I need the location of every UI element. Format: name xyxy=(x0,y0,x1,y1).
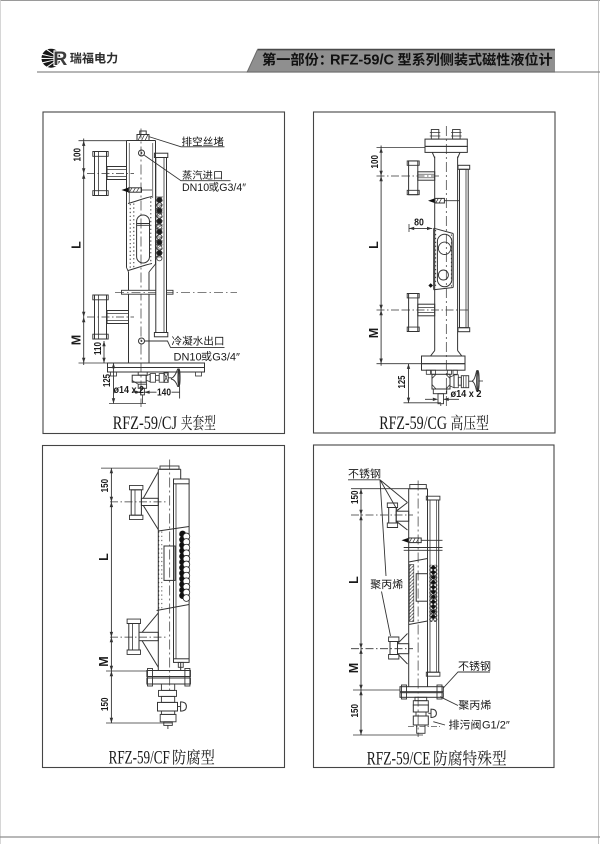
svg-text:100: 100 xyxy=(73,148,84,162)
svg-text:L: L xyxy=(347,576,361,584)
svg-text:G3/4″: G3/4″ xyxy=(212,351,240,363)
svg-text:R: R xyxy=(53,48,67,70)
svg-text:RFZ-59/CJ: RFZ-59/CJ xyxy=(113,413,177,434)
svg-text:140: 140 xyxy=(157,388,171,399)
svg-text:L: L xyxy=(70,241,84,249)
svg-text:100: 100 xyxy=(370,155,381,169)
svg-text:M: M xyxy=(347,663,361,673)
svg-text:RFZ-59/CG: RFZ-59/CG xyxy=(379,413,447,434)
svg-text:150: 150 xyxy=(350,704,361,718)
svg-text:125: 125 xyxy=(397,375,408,388)
svg-text:DN10: DN10 xyxy=(182,182,209,194)
svg-text:G3/4″: G3/4″ xyxy=(219,182,246,194)
svg-text:L: L xyxy=(97,553,111,561)
svg-text:110: 110 xyxy=(93,342,104,355)
svg-text:RFZ-59/CF: RFZ-59/CF xyxy=(109,747,170,768)
svg-text:80: 80 xyxy=(414,216,424,228)
svg-text:ø14 x 2: ø14 x 2 xyxy=(114,385,145,396)
svg-text:DN10: DN10 xyxy=(174,351,202,363)
svg-text:150: 150 xyxy=(350,490,361,504)
svg-text:RFZ-59/C: RFZ-59/C xyxy=(330,53,395,69)
svg-text:RFZ-59/CE: RFZ-59/CE xyxy=(367,748,431,769)
svg-text:125: 125 xyxy=(102,374,113,387)
svg-text:G1/2″: G1/2″ xyxy=(482,720,510,732)
svg-text:M: M xyxy=(367,328,381,338)
svg-text:L: L xyxy=(367,241,381,249)
svg-text:150: 150 xyxy=(100,478,111,492)
svg-text:M: M xyxy=(70,335,84,345)
svg-text:150: 150 xyxy=(100,697,111,711)
svg-text:M: M xyxy=(97,656,111,666)
svg-text:ø14 x 2: ø14 x 2 xyxy=(451,388,482,400)
